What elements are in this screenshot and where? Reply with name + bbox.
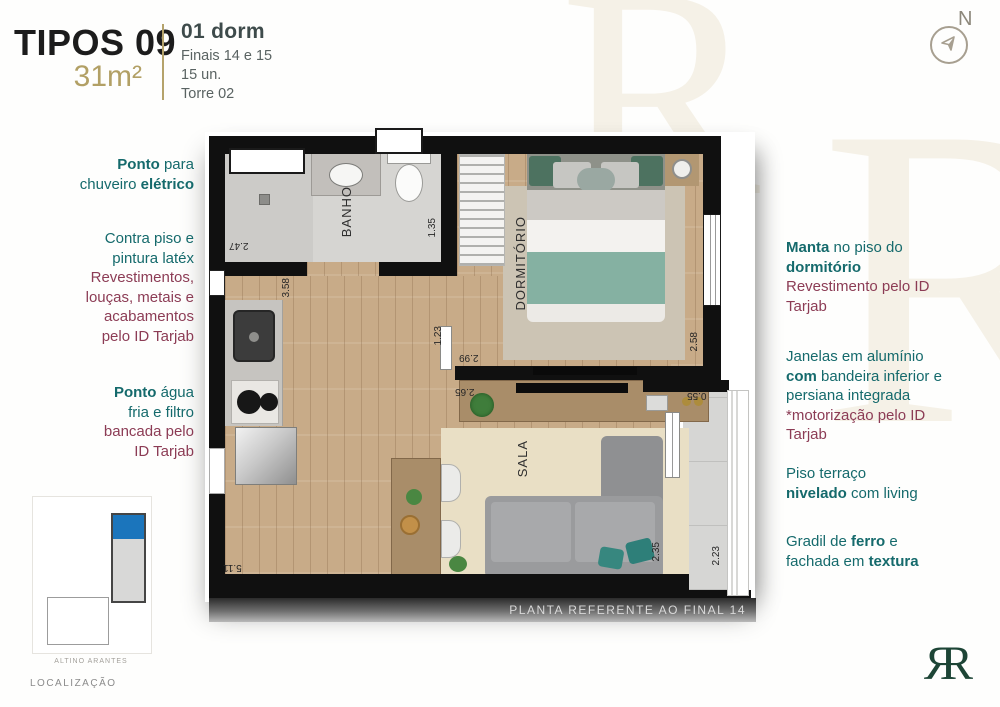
wall-bottom [209, 574, 683, 600]
desk-plant-icon [406, 489, 422, 505]
unit-info: 01 dorm Finais 14 e 15 15 un. Torre 02 [181, 20, 272, 104]
apartment-floor-plan: BANHO DORMITÓRIO SALA 2.47 1.35 3.58 1.2… [203, 128, 761, 628]
bed [527, 154, 665, 322]
page-title: TIPOS 09 [14, 22, 176, 64]
unit-info-units: 15 un. [181, 66, 272, 85]
dim-living-width: 5.11 [223, 562, 242, 573]
console-tray [646, 395, 668, 411]
dim-living-height: 2.35 [651, 542, 662, 561]
sofa [485, 496, 663, 578]
bathroom-door-opening [307, 262, 379, 276]
north-label: N [958, 8, 972, 31]
unit-info-tower: Torre 02 [181, 85, 272, 104]
toilet-bowl [395, 164, 423, 202]
shaft-box [375, 128, 423, 154]
bed-sheet-top [527, 190, 665, 220]
north-arrow-icon [938, 34, 960, 56]
area-label: 31m² [14, 60, 142, 94]
wall-tv [533, 367, 637, 375]
street-label: ALTINO ARANTES [32, 658, 150, 665]
kitchen-window [209, 270, 225, 296]
note-shower-point: Ponto parachuveiro elétrico [26, 155, 194, 194]
kitchen-sink [233, 310, 275, 362]
chair [441, 520, 461, 558]
location-tower-highlight [113, 515, 144, 539]
dim-bedroom-height: 2.58 [689, 332, 700, 351]
room-label-dormitorio: DORMITÓRIO [513, 216, 528, 311]
clock-icon [672, 159, 692, 179]
bedroom-window [703, 214, 721, 306]
dim-console-width: 2.65 [455, 386, 474, 397]
pillow-accent [577, 168, 615, 192]
header-divider [162, 24, 164, 100]
location-tower [111, 513, 146, 603]
desk [391, 458, 441, 576]
sink-basin [329, 163, 363, 187]
bed-foot [527, 304, 665, 322]
note-water-point: Ponto águafria e filtrobancada peloID Ta… [26, 383, 194, 461]
cooktop [231, 380, 279, 424]
coffee-tray [400, 515, 420, 535]
note-manta: Manta no piso dodormitórioRevestimento p… [786, 238, 986, 316]
faucet-icon [249, 332, 259, 342]
plan-footer-note: PLANTA REFERENTE AO FINAL 14 [209, 598, 756, 622]
bed-blanket [527, 252, 665, 304]
floor-plan-sheet: R R TIPOS 09 31m² 01 dorm Finais 14 e 15… [0, 0, 1000, 707]
room-label-sala: SALA [515, 440, 530, 477]
brand-logo-monogram: RR [924, 636, 973, 691]
unit-info-finais: Finais 14 e 15 [181, 47, 272, 66]
note-terrace-floor: Piso terraçonivelado com living [786, 464, 986, 503]
dim-kitchen-height: 3.58 [281, 278, 292, 297]
burner [260, 393, 278, 411]
nightstand [665, 154, 699, 186]
dim-terrace-width: 0.55 [687, 390, 706, 401]
floor-plant-icon [449, 556, 467, 572]
note-railing: Gradil de ferro efachada em textura [786, 532, 986, 571]
tv [516, 383, 628, 393]
wall-left [209, 136, 225, 586]
refrigerator [235, 427, 297, 485]
dim-hall-width: 1.23 [433, 326, 444, 345]
room-label-banho: BANHO [339, 186, 354, 237]
entry-door-opening [209, 448, 225, 494]
wall-bath-divider [441, 136, 457, 276]
dim-shower-width: 2.47 [229, 240, 248, 251]
sofa-cushion [491, 502, 571, 562]
teal-pillow [597, 546, 624, 570]
note-finishes: Contra piso epintura latéxRevestimentos,… [26, 229, 194, 346]
dim-bedroom-width: 2.99 [459, 352, 478, 363]
wall-terrace-top [643, 380, 729, 392]
bathroom-window [229, 148, 305, 174]
location-block-outline [47, 597, 109, 645]
note-windows: Janelas em alumíniocom bandeira inferior… [786, 347, 986, 445]
bed-sheet-white [527, 220, 665, 252]
unit-info-dorms: 01 dorm [181, 20, 272, 44]
chair [441, 464, 461, 502]
logo-letter-mirrored: R [924, 636, 956, 691]
compass-icon [930, 26, 968, 64]
burner [237, 390, 261, 414]
terrace-railing [727, 390, 749, 596]
localization-title: LOCALIZAÇÃO [30, 678, 117, 689]
terrace-sliding-door [665, 412, 680, 478]
dim-terrace-height: 2.23 [711, 546, 722, 565]
location-map [32, 496, 152, 654]
shower-drain [259, 194, 270, 205]
dim-bath-height: 1.35 [427, 218, 438, 237]
wardrobe [459, 154, 505, 266]
